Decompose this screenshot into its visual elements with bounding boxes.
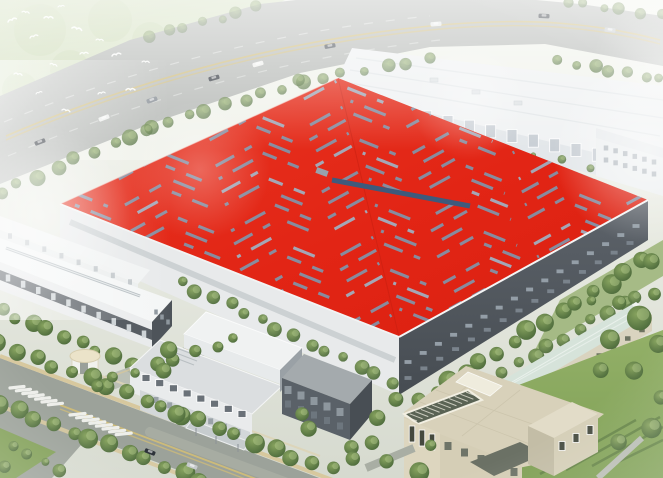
campus-aerial-image [0, 0, 663, 478]
haze-overlays [0, 0, 663, 478]
rendering-canvas [0, 0, 663, 478]
